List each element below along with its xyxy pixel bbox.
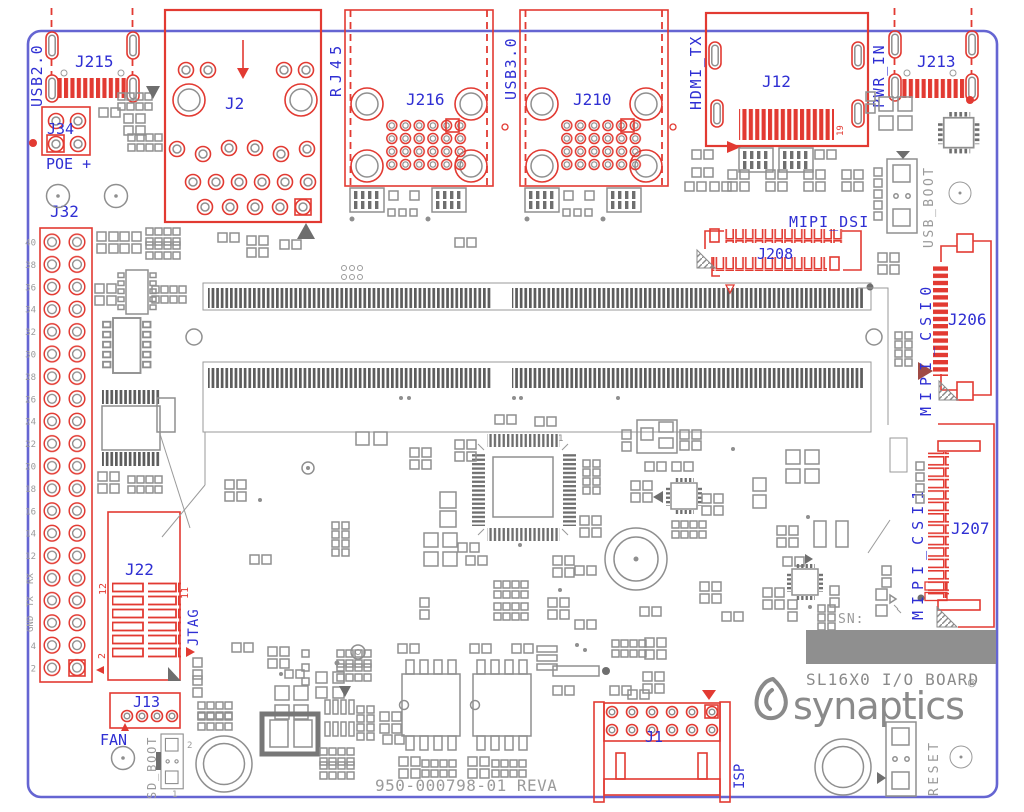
j208-ref-label: J208	[757, 245, 793, 263]
svg-text:2: 2	[31, 665, 36, 675]
mipi-csi1-function-label: MIPI_CSI1	[909, 485, 927, 620]
svg-text:40: 40	[25, 239, 36, 249]
j1-ref-label: J1	[645, 728, 663, 746]
svg-text:TX: TX	[26, 596, 36, 607]
j2-ref-label: J2	[225, 94, 244, 113]
qfp-pin1-label: 1	[558, 434, 563, 444]
jtag-function-label: JTAG	[186, 608, 202, 646]
part-number-label: 950-000798-01 REVA	[375, 776, 557, 795]
speaker-pad	[605, 528, 667, 590]
j216-ref-label: J216	[406, 90, 445, 109]
j22-pin12-label: 12	[98, 583, 109, 595]
svg-text:18: 18	[25, 485, 36, 495]
j22-pin2-label: 2	[97, 653, 108, 659]
mipi-dsi-function-label: MIPI_DSI	[789, 213, 869, 231]
svg-text:16: 16	[25, 507, 36, 517]
serial-prefix-label: SN:	[838, 612, 864, 627]
svg-text:38: 38	[25, 261, 36, 271]
usb2-function-label: USB2.0	[28, 44, 46, 107]
j213-pad-comb	[901, 79, 965, 98]
j12-ref-label: J12	[762, 72, 791, 91]
j12-pad-comb	[739, 109, 834, 140]
sd-boot-label: SD_BOOT	[145, 736, 159, 799]
poe-function-label: POE +	[46, 155, 91, 173]
j22-pin11-label: 11	[180, 587, 191, 599]
reset-label: RESET	[927, 739, 942, 796]
j207-ref-label: J207	[951, 519, 990, 538]
j213-pin1-dot	[966, 96, 974, 104]
pcb-silkscreen-svg: J215 USB2.0 J34 POE + J32 40 38 36 34 32…	[0, 0, 1024, 812]
j207-pin-comb	[928, 452, 949, 598]
svg-text:28: 28	[25, 373, 36, 383]
svg-text:12: 12	[25, 552, 36, 562]
svg-text:14: 14	[25, 530, 36, 540]
j22-ref-label: J22	[125, 560, 154, 579]
svg-text:32: 32	[25, 328, 36, 338]
j206-pin-comb	[933, 266, 948, 376]
j13-ref-label: J13	[133, 693, 160, 711]
registered-trademark-icon: ®	[968, 677, 976, 692]
svg-text:4: 4	[31, 642, 36, 652]
hdmi-function-label: HDMI_TX	[687, 35, 705, 110]
rj45-function-label: RJ45	[327, 41, 345, 97]
svg-text:GND: GND	[26, 616, 36, 632]
synaptics-wordmark: synaptics	[793, 684, 964, 728]
j206-ref-label: J206	[948, 310, 987, 329]
sd-boot-pin1: 1	[172, 790, 177, 800]
j34-ref-label: J34	[47, 120, 74, 138]
mipi-csi0-function-label: MIPI_CSI0	[917, 281, 935, 416]
sd-boot-pin2: 2	[187, 741, 192, 751]
svg-text:24: 24	[25, 418, 36, 428]
svg-text:20: 20	[25, 463, 36, 473]
svg-text:34: 34	[25, 306, 36, 316]
j213-ref-label: J213	[917, 52, 956, 71]
pcb-assembly-drawing: J215 USB2.0 J34 POE + J32 40 38 36 34 32…	[0, 0, 1024, 812]
svg-text:22: 22	[25, 440, 36, 450]
svg-text:RX: RX	[26, 573, 36, 584]
svg-text:36: 36	[25, 283, 36, 293]
svg-text:26: 26	[25, 395, 36, 405]
j210-ref-label: J210	[573, 90, 612, 109]
j34-pin1-dot	[29, 139, 37, 147]
j12-pin19-label: 19	[836, 125, 846, 136]
usb-boot-label: USB_BOOT	[922, 165, 937, 248]
usb3-function-label: USB3.0	[502, 37, 520, 100]
j215-pad-comb	[58, 78, 126, 98]
j215-ref-label: J215	[75, 52, 114, 71]
svg-text:30: 30	[25, 351, 36, 361]
isp-function-label: ISP	[732, 764, 748, 789]
